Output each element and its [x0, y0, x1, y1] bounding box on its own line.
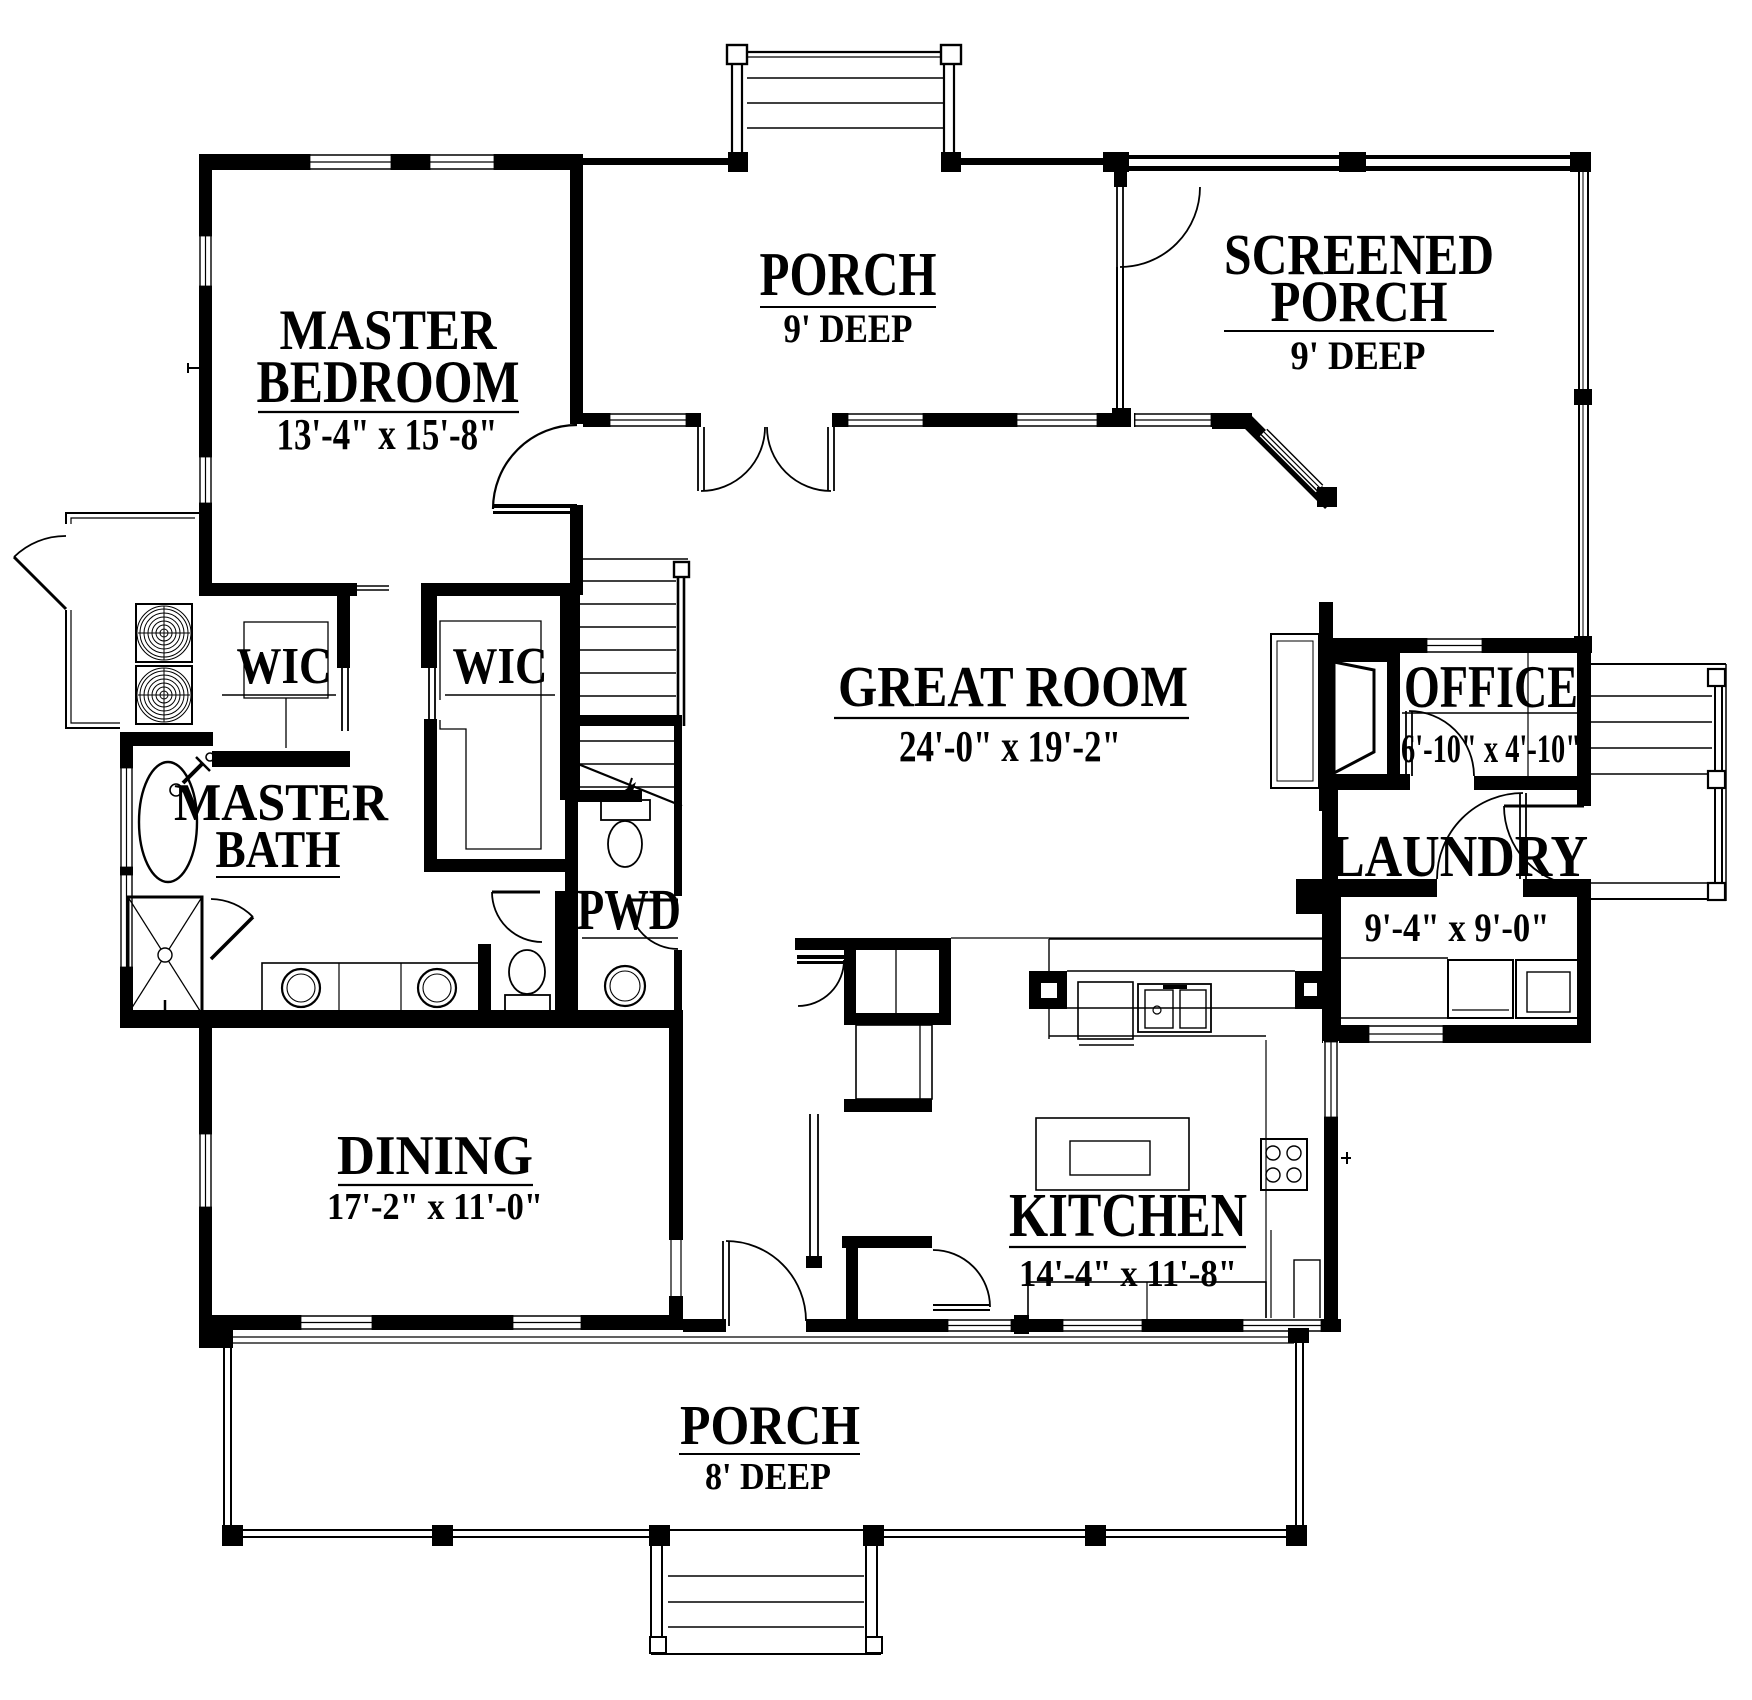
svg-text:BATH: BATH: [216, 821, 341, 879]
svg-text:KITCHEN: KITCHEN: [1009, 1182, 1247, 1250]
svg-text:WIC: WIC: [237, 638, 332, 695]
svg-text:9'-4" x 9'-0": 9'-4" x 9'-0": [1365, 905, 1550, 950]
svg-text:DINING: DINING: [337, 1125, 533, 1187]
svg-text:6'-10" x 4'-10": 6'-10" x 4'-10": [1401, 726, 1581, 771]
svg-text:17'-2" x 11'-0": 17'-2" x 11'-0": [327, 1186, 543, 1228]
svg-text:9' DEEP: 9' DEEP: [1291, 333, 1426, 378]
svg-text:PORCH: PORCH: [760, 241, 937, 309]
svg-text:WIC: WIC: [453, 638, 548, 695]
svg-text:PORCH: PORCH: [680, 1395, 860, 1457]
svg-text:14'-4" x 11'-8": 14'-4" x 11'-8": [1019, 1253, 1237, 1295]
svg-text:PORCH: PORCH: [1271, 269, 1448, 334]
svg-text:24'-0" x 19'-2": 24'-0" x 19'-2": [899, 722, 1121, 771]
svg-text:OFFICE: OFFICE: [1404, 654, 1578, 720]
svg-text:13'-4" x 15'-8": 13'-4" x 15'-8": [277, 410, 498, 459]
svg-text:8' DEEP: 8' DEEP: [705, 1456, 831, 1498]
svg-text:PWD: PWD: [577, 877, 681, 942]
svg-text:LAUNDRY: LAUNDRY: [1330, 823, 1588, 889]
svg-text:BEDROOM: BEDROOM: [257, 349, 520, 415]
svg-text:9' DEEP: 9' DEEP: [784, 306, 913, 351]
svg-text:GREAT ROOM: GREAT ROOM: [838, 654, 1188, 719]
